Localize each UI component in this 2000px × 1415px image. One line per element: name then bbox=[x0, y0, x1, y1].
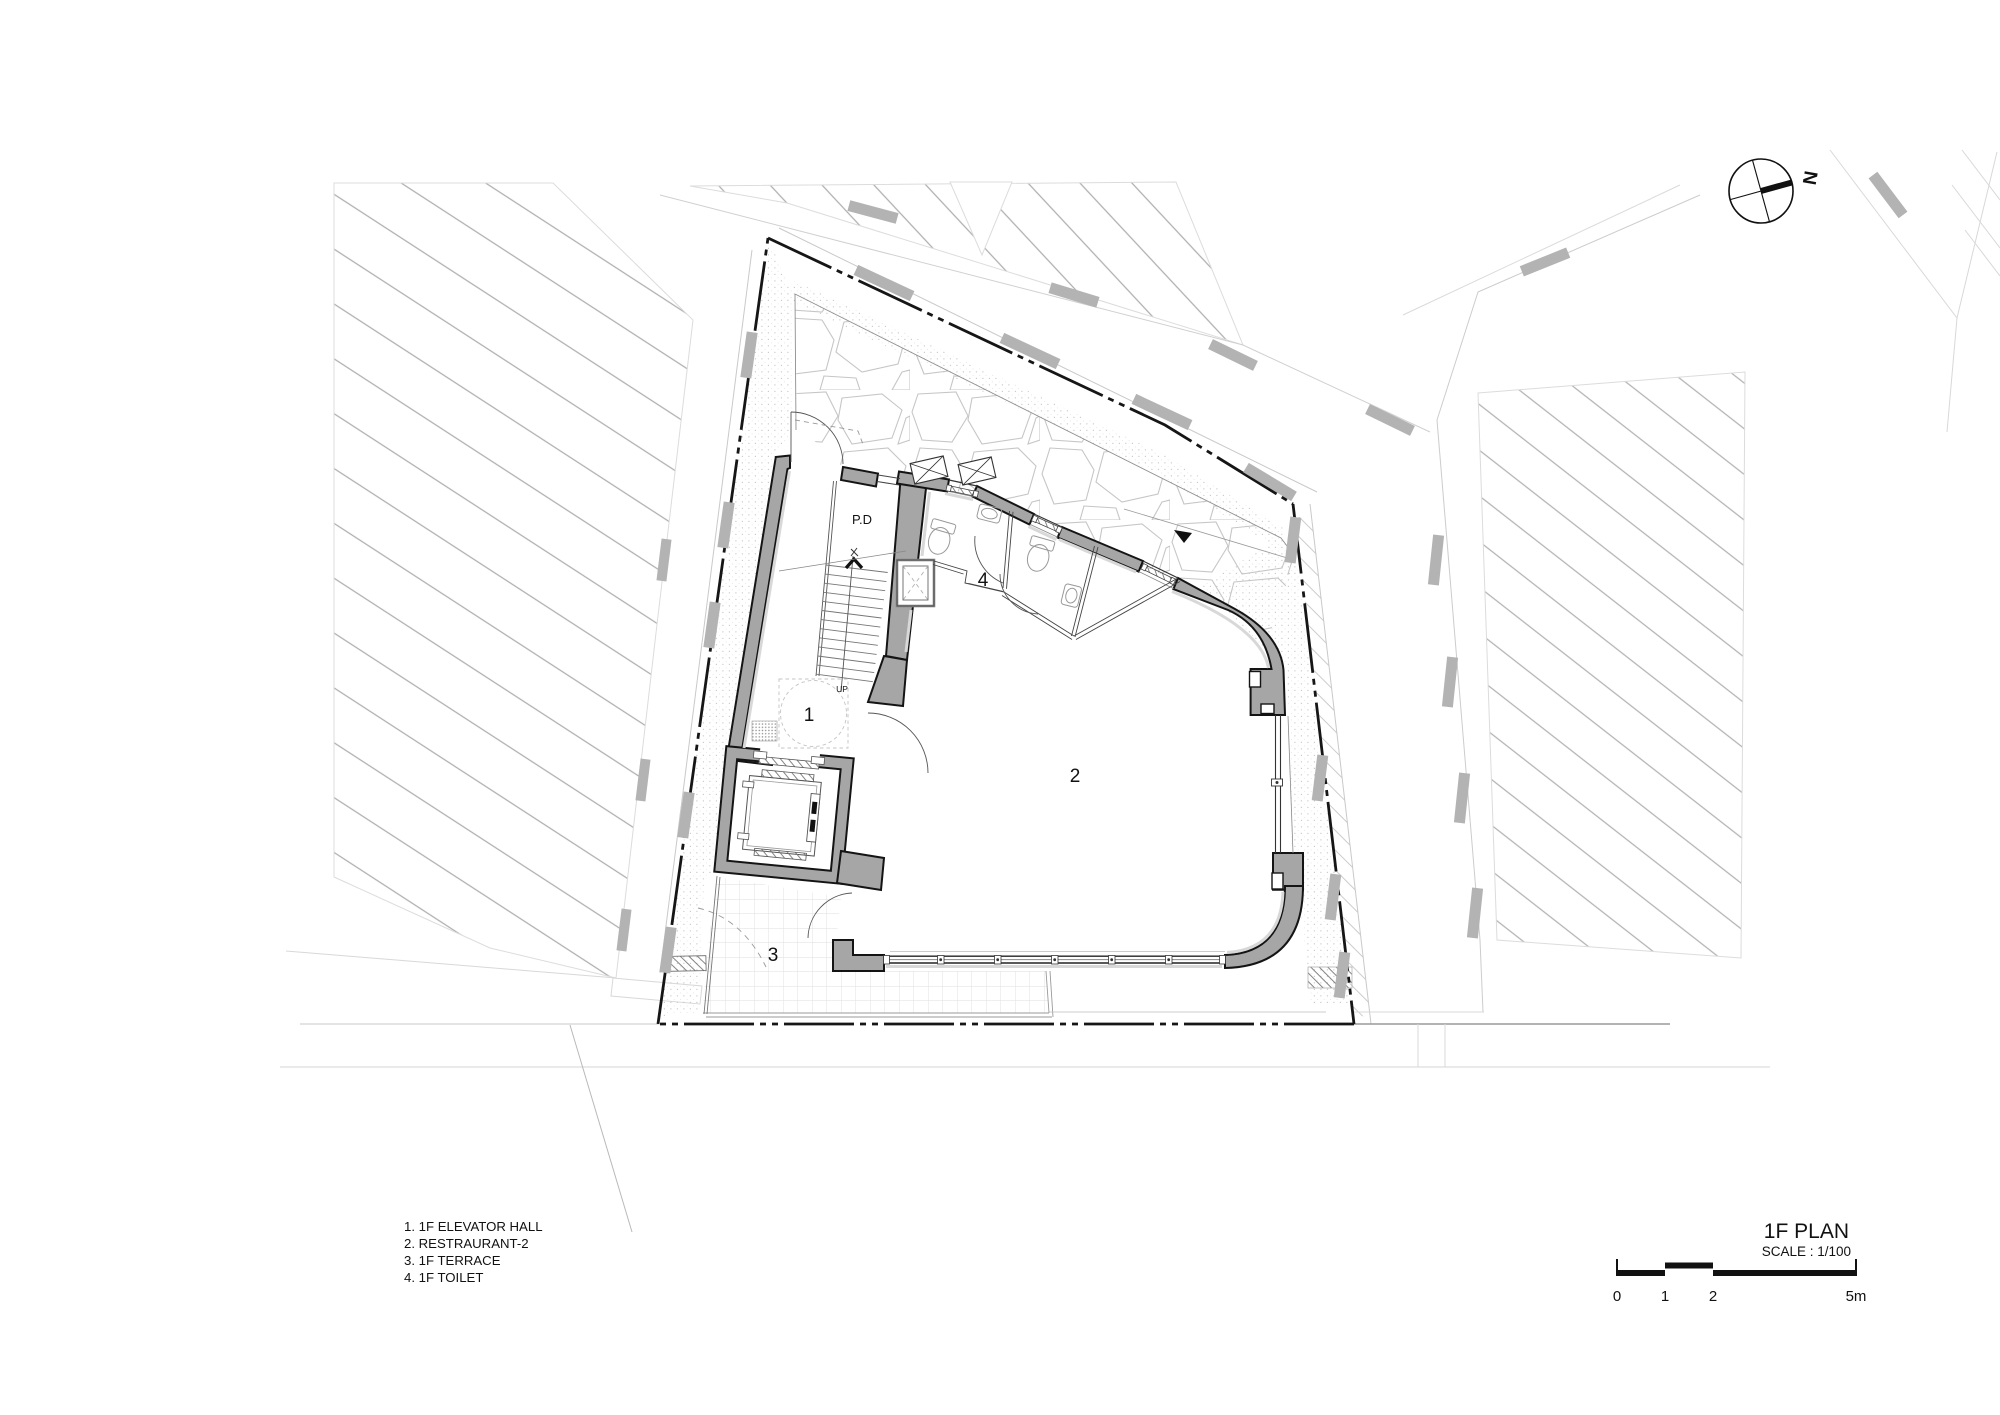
svg-text:SCALE : 1/100: SCALE : 1/100 bbox=[1762, 1244, 1851, 1259]
svg-text:2: 2 bbox=[1070, 766, 1081, 787]
svg-text:4. 1F TOILET: 4. 1F TOILET bbox=[404, 1270, 483, 1285]
svg-text:4: 4 bbox=[978, 570, 989, 591]
svg-text:UP: UP bbox=[836, 684, 848, 694]
svg-text:3: 3 bbox=[768, 945, 779, 966]
svg-text:2: 2 bbox=[1709, 1288, 1717, 1305]
svg-text:1F PLAN: 1F PLAN bbox=[1764, 1220, 1849, 1243]
svg-text:2. RESTRAURANT-2: 2. RESTRAURANT-2 bbox=[404, 1236, 529, 1251]
svg-text:5m: 5m bbox=[1846, 1288, 1867, 1305]
svg-text:1: 1 bbox=[804, 705, 815, 726]
svg-text:0: 0 bbox=[1613, 1288, 1621, 1305]
svg-text:P.D: P.D bbox=[852, 512, 872, 527]
svg-text:1: 1 bbox=[1661, 1288, 1669, 1305]
svg-text:3. 1F TERRACE: 3. 1F TERRACE bbox=[404, 1253, 501, 1268]
svg-text:1. 1F ELEVATOR HALL: 1. 1F ELEVATOR HALL bbox=[404, 1219, 543, 1234]
